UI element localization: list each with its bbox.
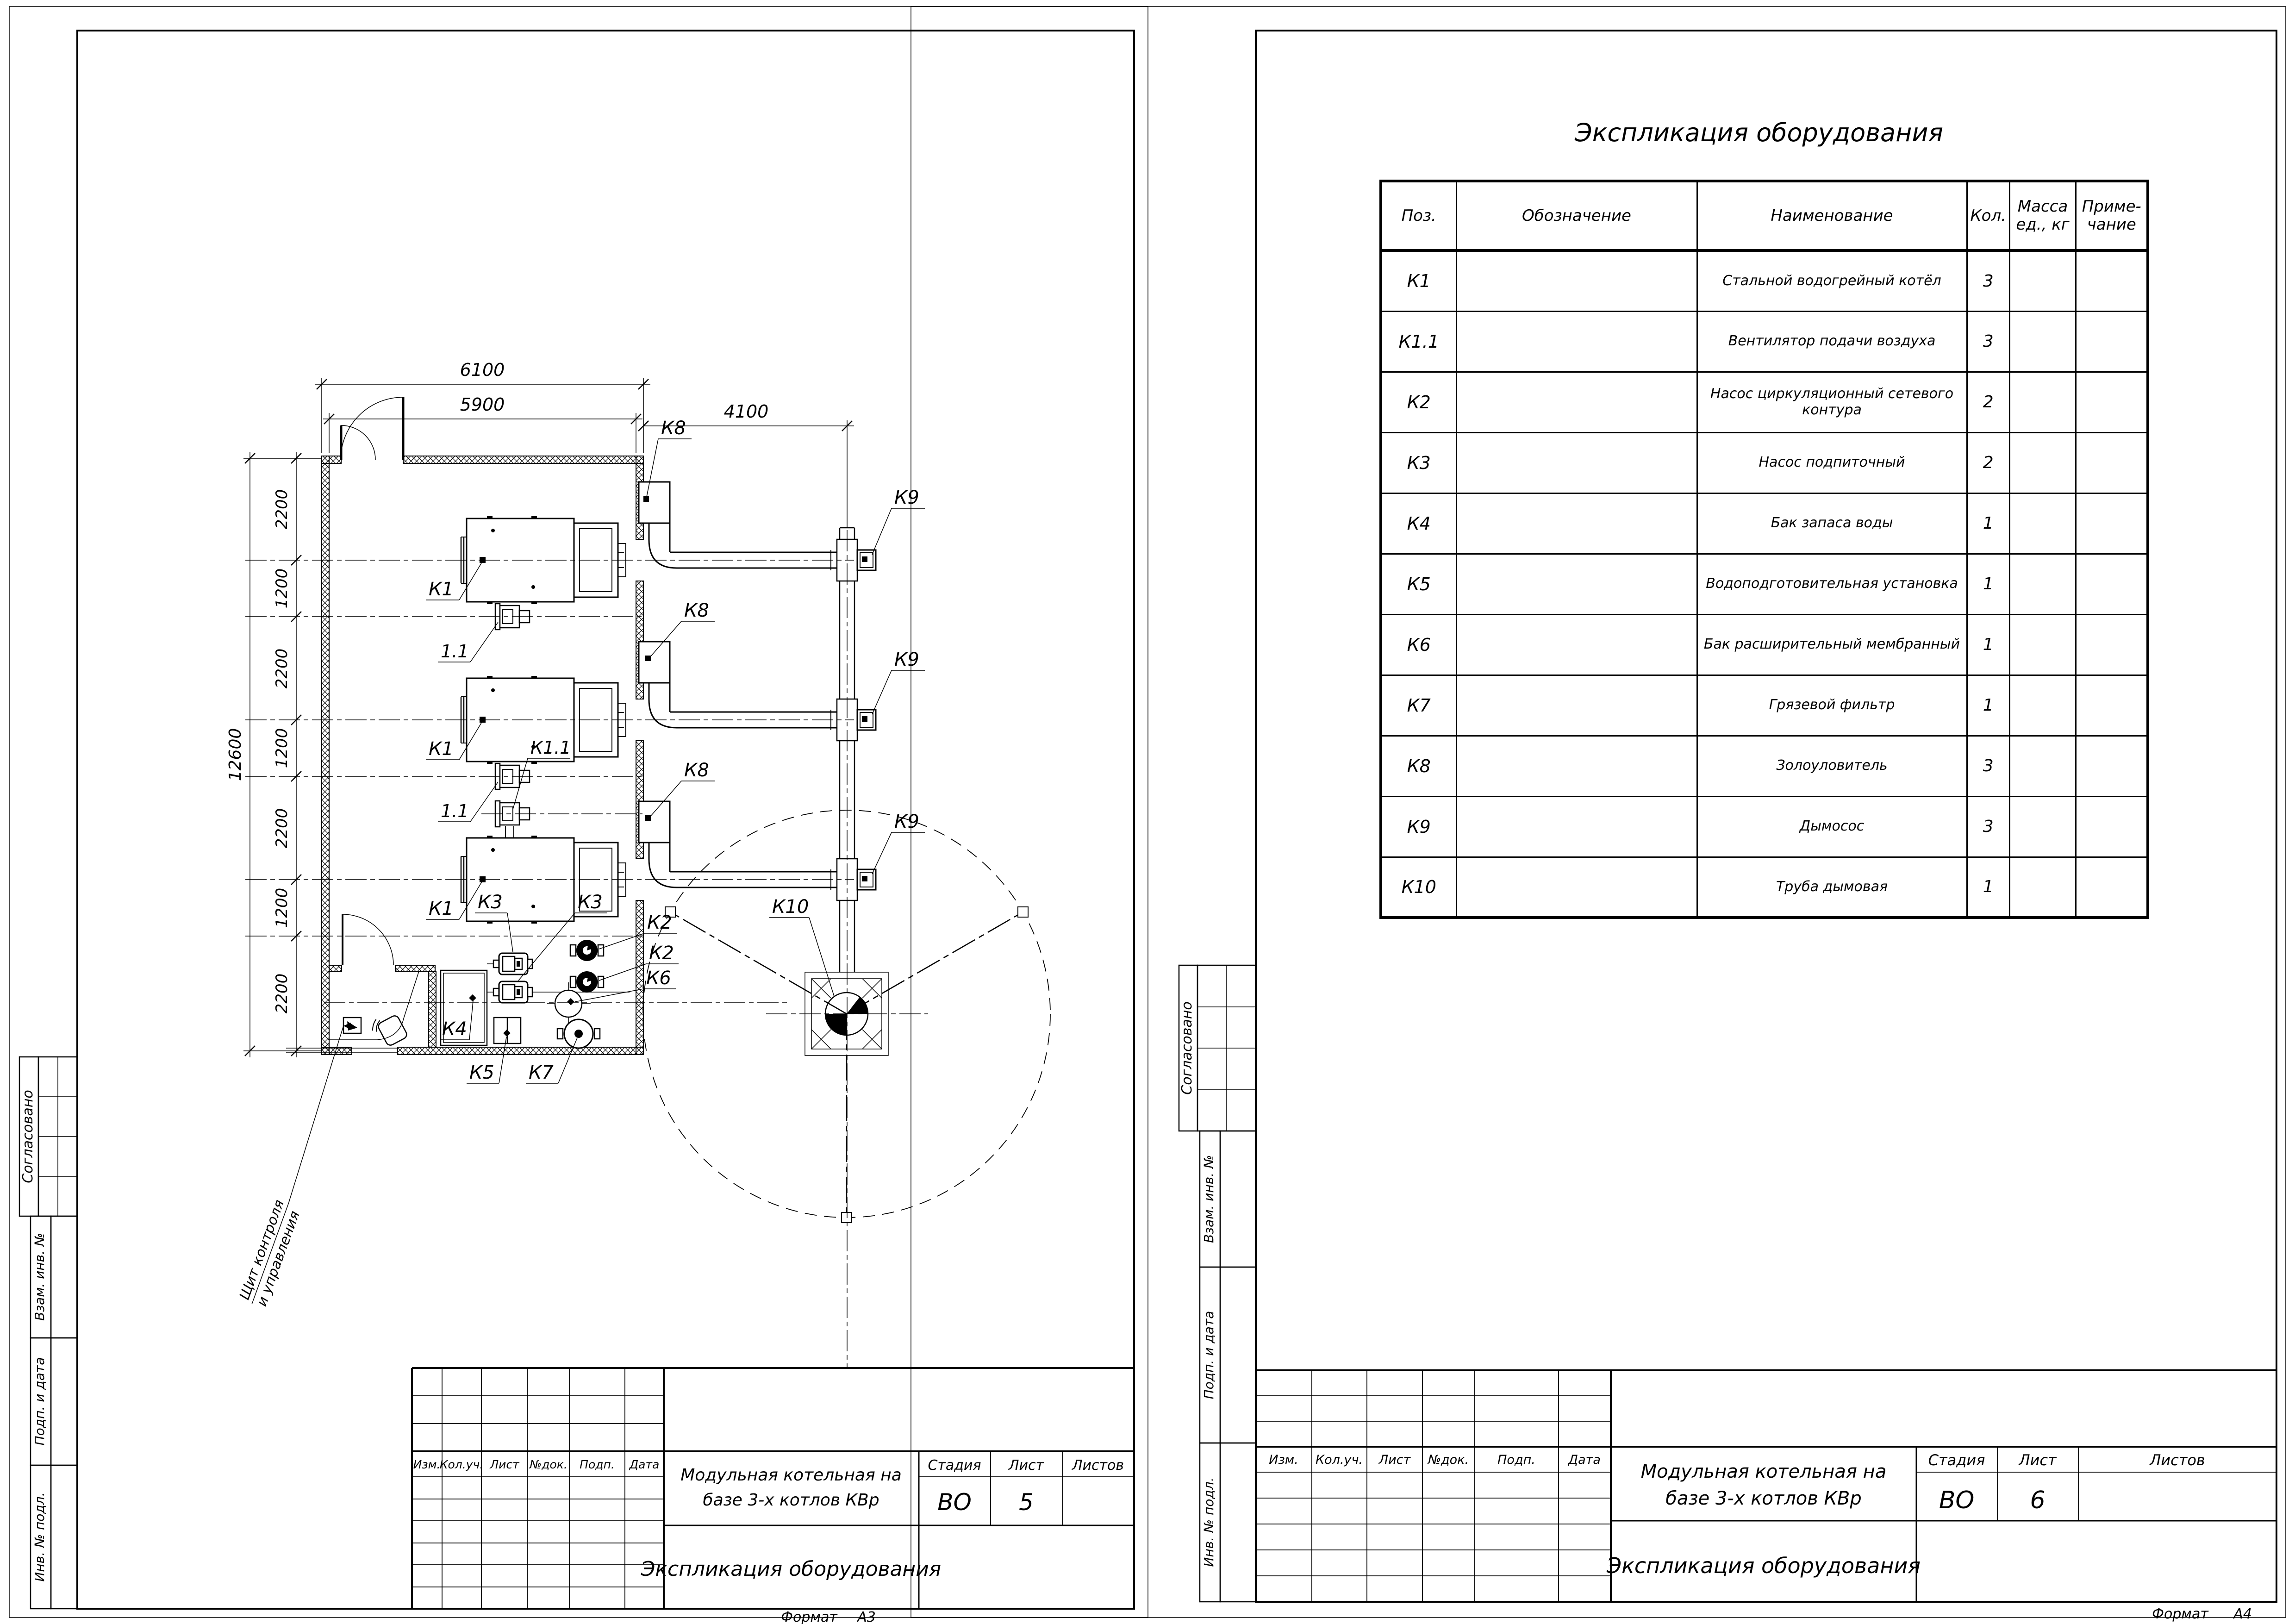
cell-note [2076, 675, 2148, 736]
cell-pos: К9 [1381, 796, 1456, 857]
table-row: К3 Насос подпиточный 2 [1381, 432, 2148, 493]
cell-mass [2009, 857, 2076, 918]
col-izm: Изм. [413, 1458, 441, 1471]
cell-name: Труба дымовая [1697, 857, 1967, 918]
dim-4100: 4100 [724, 401, 769, 422]
stage-value: ВО [937, 1489, 972, 1516]
dim-chain-3: 1200 [273, 728, 291, 768]
left-title-block: Изм. Кол.уч. Лист №док. Подп. Дата Модул… [412, 1368, 1134, 1624]
cell-qty: 3 [1967, 796, 2009, 857]
cell-note [2076, 736, 2148, 796]
cell-designation [1456, 311, 1697, 372]
cell-name: Стальной водогрейный котёл [1697, 250, 1967, 311]
object-title-line1: Модульная котельная на [680, 1466, 902, 1485]
cell-name: Золоуловитель [1697, 736, 1967, 796]
cell-note [2076, 493, 2148, 554]
cell-mass [2009, 796, 2076, 857]
network-pump-1 [570, 940, 604, 961]
format-value: А4 [2233, 1606, 2252, 1622]
cell-designation [1456, 554, 1697, 614]
cell-note [2076, 250, 2148, 311]
cell-pos: К3 [1381, 432, 1456, 493]
annotation-control-panel: Щит контроля и управления [236, 1023, 351, 1310]
stamp-inv-no: Инв. № подл. [1201, 1477, 1216, 1567]
cell-mass [2009, 493, 2076, 554]
svg-text:К4: К4 [442, 1018, 467, 1040]
header-note-line2: чание [2079, 216, 2144, 234]
col-izm: Изм. [1269, 1453, 1298, 1467]
cell-pos: К2 [1381, 372, 1456, 432]
cell-mass [2009, 554, 2076, 614]
entrance-door [341, 397, 403, 460]
object-title-line1: Модульная котельная на [1641, 1461, 1887, 1482]
table-row: К1 Стальной водогрейный котёл 3 [1381, 250, 2148, 311]
right-title-block: Изм. Кол.уч. Лист №док. Подп. Дата Модул… [1256, 1370, 2276, 1622]
table-row: К6 Бак расширительный мембранный 1 [1381, 614, 2148, 675]
stamp-sign-date: Подп. и дата [1201, 1311, 1216, 1399]
left-side-stamps: Согласовано Взам. инв. № Подп. и дата Ин… [19, 1057, 77, 1609]
svg-text:К9: К9 [894, 649, 919, 670]
svg-text:К3: К3 [478, 892, 503, 913]
header-designation: Обозначение [1456, 181, 1697, 250]
cell-designation [1456, 614, 1697, 675]
cell-pos: К1.1 [1381, 311, 1456, 372]
format-label: Формат [781, 1609, 838, 1624]
cell-name: Грязевой фильтр [1697, 675, 1967, 736]
object-title-line2: базе 3-х котлов КВр [1665, 1488, 1862, 1509]
col-list: Лист [489, 1458, 520, 1471]
dim-12600: 12600 [226, 728, 245, 781]
svg-text:К3: К3 [578, 892, 603, 913]
format-label: Формат [2152, 1606, 2209, 1622]
dim-5900: 5900 [460, 394, 505, 415]
label-fan-1: 1.1 [438, 622, 498, 662]
cell-designation [1456, 675, 1697, 736]
cell-note [2076, 432, 2148, 493]
stage-label: Стадия [928, 1457, 981, 1474]
svg-text:К6: К6 [646, 968, 671, 989]
equipment-table: Поз. Обозначение Наименование Кол. Масса… [1379, 180, 2149, 919]
cell-pos: К8 [1381, 736, 1456, 796]
sheets-label: Листов [2149, 1451, 2205, 1469]
svg-text:1.1: 1.1 [441, 641, 468, 662]
cell-qty: 2 [1967, 432, 2009, 493]
room-door [343, 914, 393, 965]
guy-wires [670, 912, 1023, 1218]
table-row: К4 Бак запаса воды 1 [1381, 493, 2148, 554]
cell-name: Насос подпиточный [1697, 432, 1967, 493]
left-sheet-page [9, 6, 1148, 1618]
cell-designation [1456, 372, 1697, 432]
cell-qty: 3 [1967, 736, 2009, 796]
sheet-label: Лист [2018, 1451, 2057, 1469]
sheet-label: Лист [1008, 1457, 1045, 1474]
cell-mass [2009, 372, 2076, 432]
cell-note [2076, 857, 2148, 918]
stamp-replace-inv: Взам. инв. № [1201, 1155, 1216, 1243]
header-note-line1: Приме- [2079, 198, 2144, 216]
table-row: К8 Золоуловитель 3 [1381, 736, 2148, 796]
col-koluch: Кол.уч. [440, 1458, 483, 1471]
table-row: К1.1 Вентилятор подачи воздуха 3 [1381, 311, 2148, 372]
cell-pos: К4 [1381, 493, 1456, 554]
cell-mass [2009, 614, 2076, 675]
header-mass: Масса ед., кг [2009, 181, 2076, 250]
cell-designation [1456, 493, 1697, 554]
col-list: Лист [1378, 1453, 1411, 1467]
cell-qty: 1 [1967, 493, 2009, 554]
cell-pos: К6 [1381, 614, 1456, 675]
sheets-label: Листов [1072, 1457, 1124, 1474]
cell-name: Бак запаса воды [1697, 493, 1967, 554]
svg-text:К10: К10 [772, 896, 809, 918]
cell-note [2076, 311, 2148, 372]
col-data: Дата [1568, 1453, 1601, 1467]
header-pos: Поз. [1381, 181, 1456, 250]
label-fan-2: 1.1 [438, 782, 498, 822]
dim-chain-2: 2200 [273, 649, 291, 689]
cell-mass [2009, 675, 2076, 736]
cell-name: Вентилятор подачи воздуха [1697, 311, 1967, 372]
col-ndok: №док. [529, 1458, 568, 1471]
svg-text:К2: К2 [647, 912, 672, 933]
cell-pos: К1 [1381, 250, 1456, 311]
stamp-sign-date: Подп. и дата [32, 1357, 47, 1446]
cell-designation [1456, 857, 1697, 918]
cell-mass [2009, 311, 2076, 372]
cell-qty: 1 [1967, 554, 2009, 614]
stamp-replace-inv: Взам. инв. № [32, 1233, 47, 1321]
equipment-table-header: Поз. Обозначение Наименование Кол. Масса… [1381, 181, 2148, 250]
format-value: А3 [856, 1609, 876, 1624]
col-koluch: Кол.уч. [1316, 1453, 1363, 1467]
cell-qty: 2 [1967, 372, 2009, 432]
equipment-table-title: Экспликация оборудования [1491, 118, 2027, 147]
svg-text:К7: К7 [529, 1062, 554, 1083]
network-pump-2 [570, 971, 604, 993]
svg-text:1.1: 1.1 [441, 801, 468, 821]
svg-text:К8: К8 [661, 418, 686, 439]
table-row: К10 Труба дымовая 1 [1381, 857, 2148, 918]
doc-name: Экспликация оборудования [641, 1557, 942, 1581]
cell-designation [1456, 736, 1697, 796]
feed-pump-2 [493, 981, 532, 1003]
svg-text:К8: К8 [684, 760, 709, 781]
cell-designation [1456, 250, 1697, 311]
cell-name: Бак расширительный мембранный [1697, 614, 1967, 675]
stage-value: ВО [1939, 1487, 1975, 1514]
cell-qty: 1 [1967, 614, 2009, 675]
cell-qty: 1 [1967, 857, 2009, 918]
stamp-inv-no: Инв. № подл. [32, 1492, 47, 1581]
cell-qty: 3 [1967, 311, 2009, 372]
floor-plan: 6100 5900 4100 2200 1200 2200 1200 [226, 360, 1050, 1368]
col-data: Дата [629, 1458, 660, 1471]
svg-text:К2: К2 [649, 943, 674, 964]
cell-mass [2009, 250, 2076, 311]
dim-chain-4: 2200 [273, 808, 291, 849]
header-mass-line2: ед., кг [2013, 216, 2072, 234]
dim-chain-1: 1200 [273, 568, 291, 609]
cell-note [2076, 796, 2148, 857]
table-row: К5 Водоподготовительная установка 1 [1381, 554, 2148, 614]
col-podp: Подп. [1497, 1453, 1535, 1467]
table-row: К9 Дымосос 3 [1381, 796, 2148, 857]
stamp-approved: Согласовано [1179, 1001, 1195, 1095]
object-title-line2: базе 3-х котлов КВр [703, 1491, 879, 1510]
sheet-value: 6 [2030, 1487, 2045, 1514]
header-name: Наименование [1697, 181, 1967, 250]
table-row: К7 Грязевой фильтр 1 [1381, 675, 2148, 736]
cell-qty: 1 [1967, 675, 2009, 736]
dim-chain-6: 2200 [273, 974, 291, 1014]
drawing-canvas: Согласовано Взам. инв. № Подп. и дата Ин… [0, 0, 2295, 1624]
svg-text:К9: К9 [894, 811, 919, 832]
cell-name: Дымосос [1697, 796, 1967, 857]
svg-text:К8: К8 [684, 600, 709, 621]
expansion-tank-k6 [555, 990, 582, 1017]
svg-text:К9: К9 [894, 487, 919, 508]
dim-chain-0: 2200 [273, 489, 291, 530]
stage-label: Стадия [1928, 1451, 1985, 1469]
cell-designation [1456, 796, 1697, 857]
svg-text:К1: К1 [429, 898, 454, 919]
cell-mass [2009, 736, 2076, 796]
sink [369, 1010, 408, 1049]
cell-pos: К10 [1381, 857, 1456, 918]
mud-filter-k7 [557, 1019, 600, 1048]
dim-chain-5: 1200 [273, 888, 291, 928]
header-qty: Кол. [1967, 181, 2009, 250]
cell-qty: 3 [1967, 250, 2009, 311]
cell-pos: К5 [1381, 554, 1456, 614]
cell-name: Водоподготовительная установка [1697, 554, 1967, 614]
svg-text:К1: К1 [429, 738, 454, 760]
svg-text:К1.1: К1.1 [530, 737, 571, 758]
cell-note [2076, 372, 2148, 432]
svg-text:К5: К5 [469, 1062, 494, 1083]
dim-6100: 6100 [460, 360, 505, 380]
doc-name: Экспликация оборудования [1606, 1553, 1921, 1578]
cell-mass [2009, 432, 2076, 493]
right-side-stamps: Согласовано Взам. инв. № Подп. и дата Ин… [1179, 965, 1256, 1602]
cell-designation [1456, 432, 1697, 493]
header-mass-line1: Масса [2013, 198, 2072, 216]
cell-note [2076, 614, 2148, 675]
col-podp: Подп. [580, 1458, 615, 1471]
table-row: К2 Насос циркуляционный сетевого контура… [1381, 372, 2148, 432]
svg-text:К1: К1 [429, 579, 454, 600]
cell-name: Насос циркуляционный сетевого контура [1697, 372, 1967, 432]
header-note: Приме- чание [2076, 181, 2148, 250]
cell-note [2076, 554, 2148, 614]
stamp-approved: Согласовано [20, 1090, 36, 1183]
cell-pos: К7 [1381, 675, 1456, 736]
col-ndok: №док. [1427, 1453, 1469, 1467]
sheet-value: 5 [1019, 1489, 1034, 1516]
